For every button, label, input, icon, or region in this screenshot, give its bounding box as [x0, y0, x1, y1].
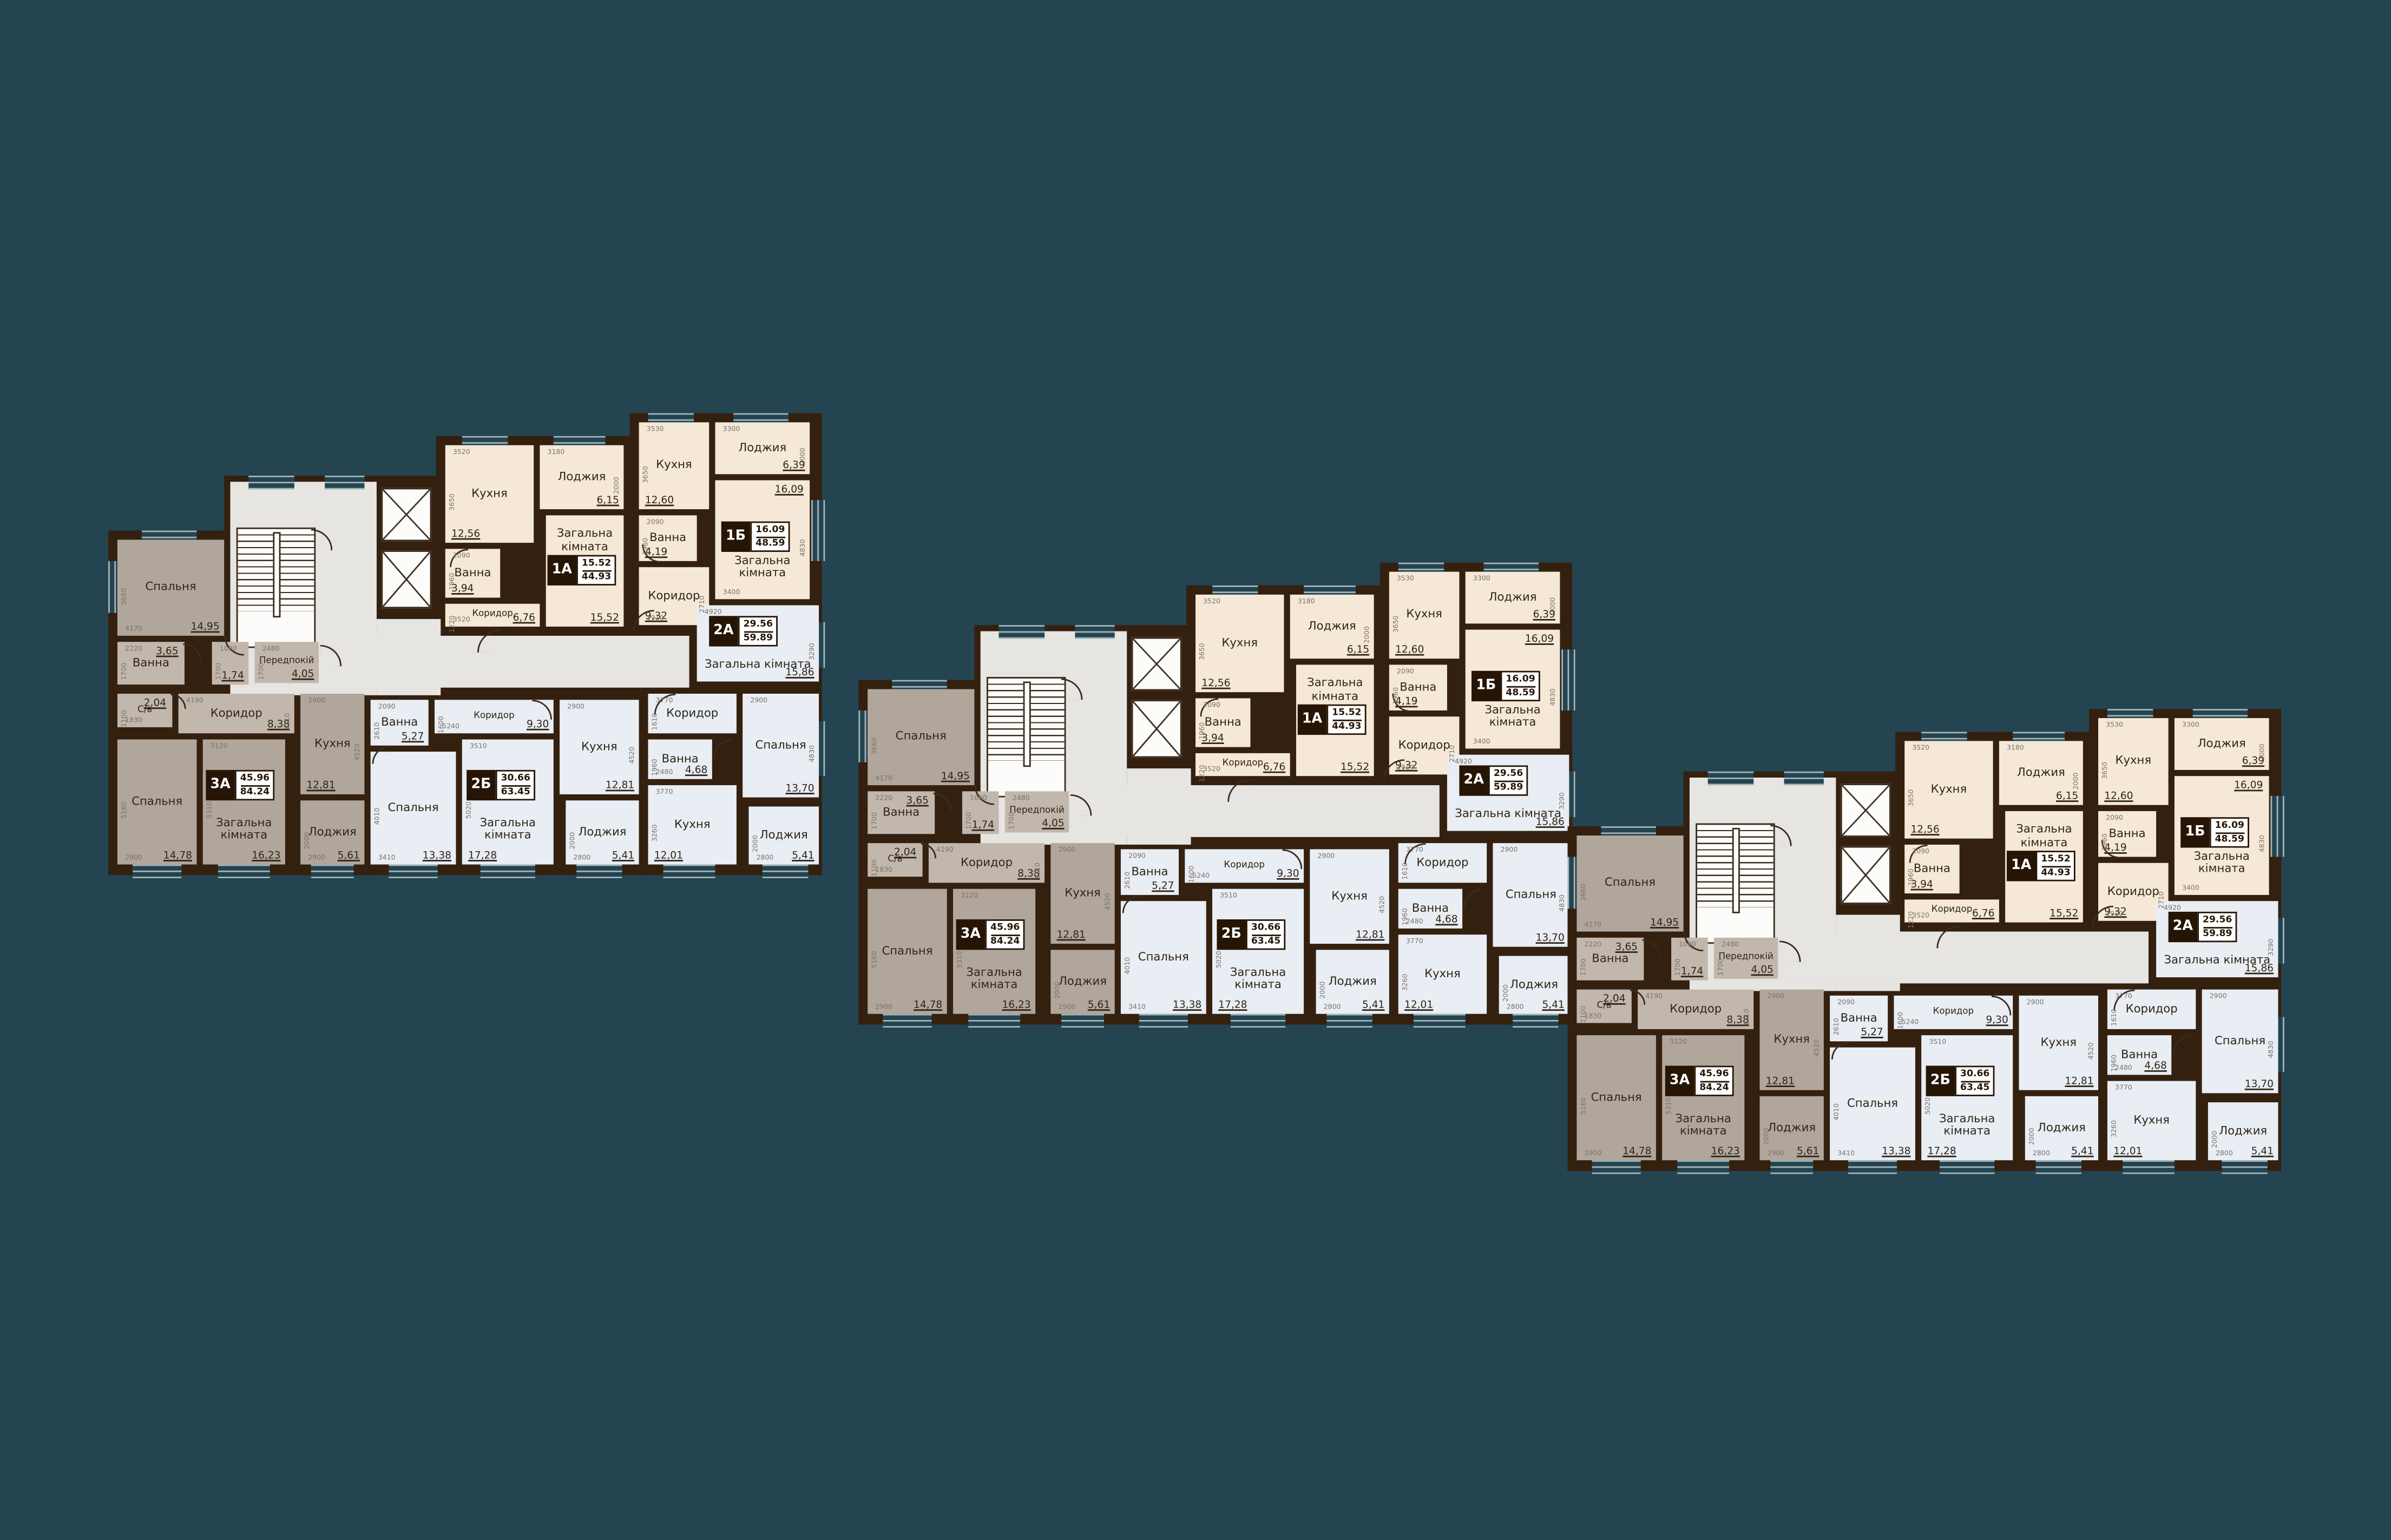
room-label: Коридор — [474, 712, 514, 722]
apartment-badge-1a: 1А15.5244.93 — [548, 555, 617, 585]
total-area-value: 84.24 — [1699, 1082, 1729, 1094]
apartment-code: 1А — [2007, 851, 2036, 881]
room-area: 6,15 — [597, 494, 619, 506]
dimension-label: 3770 — [656, 787, 673, 795]
room-area: 5,61 — [1797, 1145, 1819, 1157]
dimension-label: 3180 — [1298, 597, 1315, 605]
dimension-label: 2000 — [1363, 626, 1371, 643]
living-area-value: 45.96 — [240, 772, 270, 786]
dimension-label: 5020 — [464, 801, 472, 819]
room-label: Спальня — [1506, 889, 1556, 901]
apartment-badge-2a: 2А29.5659.89 — [1459, 765, 1528, 795]
room-kitchen: Кухня12,81 — [2019, 996, 2099, 1090]
room-area: 5,41 — [2071, 1145, 2093, 1157]
total-area-value: 59.89 — [2203, 928, 2232, 940]
room-label: Спальня — [132, 795, 182, 808]
room-living-room: Загальна кімната17,28 — [1921, 1035, 2013, 1160]
room-kitchen: Кухня12,81 — [1310, 849, 1389, 944]
window — [576, 865, 622, 878]
room-label: Лоджия — [1768, 1122, 1816, 1135]
staircase — [1696, 824, 1775, 944]
dimension-label: 3400 — [1473, 737, 1490, 745]
dimension-label: 2480 — [262, 644, 280, 652]
window — [999, 625, 1045, 639]
dimension-label: 2220 — [125, 644, 142, 652]
apartment-areas: 30.6663.45 — [1246, 919, 1286, 950]
room-label: Кухня — [314, 738, 351, 751]
dimension-label: 1910 — [2106, 910, 2123, 918]
dimension-label: 2900 — [2210, 992, 2227, 1000]
room-label: Лоджия — [2038, 1122, 2086, 1135]
dimension-label: 2000 — [303, 832, 311, 850]
dimension-label: 3770 — [1406, 845, 1423, 853]
apartment-code: 1А — [1298, 705, 1327, 735]
stair-rail — [1023, 681, 1031, 766]
room-label: Лоджия — [557, 471, 606, 484]
dimension-label: 1910 — [647, 614, 664, 622]
room-label: Передпокій — [1718, 953, 1773, 964]
window — [883, 1014, 931, 1028]
room-label: Спальня — [1591, 1091, 1642, 1104]
dimension-label: 3400 — [723, 588, 740, 596]
dimension-label: 5020 — [1923, 1097, 1932, 1115]
room-label: Передпокій — [1009, 807, 1064, 817]
dimension-label: 2800 — [573, 853, 590, 861]
dimension-label: 3120 — [961, 891, 978, 899]
window — [1139, 1014, 1188, 1028]
room-area: 15,52 — [590, 611, 619, 624]
dimension-label: 2220 — [875, 794, 892, 802]
room-area: 12,81 — [306, 779, 335, 792]
dimension-label: 4520 — [1812, 1039, 1821, 1057]
dimension-label: 4190 — [1645, 992, 1663, 1000]
room-bedroom: Спальня14,95 — [868, 689, 974, 786]
dimension-label: 2900 — [2027, 998, 2044, 1006]
total-area-value: 48.59 — [2215, 833, 2244, 845]
room-area: 17,28 — [1218, 999, 1247, 1011]
total-area-value: 44.93 — [2041, 867, 2070, 879]
dimension-label: 2900 — [750, 696, 767, 704]
apartment-areas: 30.6663.45 — [1955, 1066, 1995, 1096]
dimension-label: 1700 — [1716, 958, 1724, 975]
room-area: 16,23 — [252, 849, 280, 861]
dimension-label: 2000 — [798, 448, 806, 465]
dimension-label: 2900 — [1501, 845, 1518, 853]
dimension-label: 4010 — [1123, 957, 1131, 975]
room-label: Коридор — [1224, 861, 1264, 871]
room-label: Коридор — [1933, 1008, 1974, 1018]
dimension-label: 1090 — [220, 644, 237, 652]
dimension-label: 1310 — [1033, 863, 1041, 880]
living-area-value: 30.66 — [501, 772, 530, 786]
room-area: 12,01 — [2113, 1145, 2142, 1157]
room-label: Загальна кімната — [1662, 1113, 1744, 1138]
dimension-label: 3120 — [1670, 1037, 1687, 1045]
dimension-label: 4010 — [373, 807, 381, 825]
dimension-label: 2000 — [1501, 984, 1509, 1002]
room-label: Спальня — [2215, 1035, 2265, 1048]
dimension-label: 4830 — [798, 539, 806, 557]
dimension-label: 2000 — [1318, 982, 1326, 999]
dimension-label: 5020 — [1214, 951, 1223, 968]
dimension-label: 2480 — [656, 768, 673, 776]
room-label: Кухня — [2040, 1036, 2077, 1049]
window — [1075, 625, 1114, 639]
dimension-label: 3410 — [1128, 1003, 1146, 1011]
total-area-value: 48.59 — [756, 537, 785, 549]
dimension-label: 3660 — [870, 736, 878, 754]
dimension-label: 4520 — [1103, 893, 1112, 910]
room-area: 13,38 — [1882, 1145, 1910, 1157]
apartment-code: 3А — [1665, 1066, 1694, 1096]
room-living-room: Загальна кімната16,23 — [203, 740, 285, 865]
room-bedroom: Спальня13,38 — [1121, 901, 1206, 1014]
room-area: 3,65 — [907, 794, 929, 807]
room-area: 16,09 — [1525, 633, 1554, 645]
room-label: Кухня — [581, 741, 618, 754]
room-label: Коридор — [1932, 906, 1972, 916]
room-label: Коридор — [1398, 739, 1450, 752]
room-label: Ванна — [381, 716, 418, 729]
dimension-label: 3290 — [807, 643, 816, 660]
dimension-label: 1700 — [1007, 812, 1015, 829]
room-area: 15,86 — [2245, 962, 2274, 975]
dimension-label: 4520 — [2087, 1042, 2095, 1059]
dimension-label: 2800 — [757, 853, 774, 861]
dimension-label: 4190 — [936, 845, 954, 853]
room-label: Кухня — [1406, 609, 1442, 622]
dimension-label: 1830 — [875, 865, 892, 873]
dimension-label: 2610 — [1832, 1018, 1840, 1035]
dimension-label: 3520 — [1912, 743, 1929, 752]
room-bedroom: Спальня14,78 — [1577, 1035, 1656, 1160]
dimension-label: 3650 — [2100, 761, 2108, 779]
dimension-label: 3180 — [548, 447, 565, 456]
dimension-label: 3510 — [1220, 891, 1237, 899]
apartment-code: 2А — [709, 616, 738, 646]
hallway-floor — [1784, 932, 2149, 984]
room-area: 12,56 — [451, 528, 480, 540]
room-area: 9,30 — [1986, 1014, 2008, 1026]
dimension-label: 3770 — [656, 696, 673, 704]
apartment-badge-3a: 3А45.9684.24 — [956, 919, 1026, 950]
dimension-label: 3260 — [1401, 974, 1409, 991]
dimension-label: 1610 — [651, 713, 659, 730]
dimension-label: 3180 — [2007, 743, 2024, 752]
apartment-code: 3А — [206, 770, 235, 800]
dimension-label: 4170 — [125, 624, 142, 633]
room-label: Кухня — [656, 459, 692, 472]
dimension-label: 2900 — [875, 1003, 892, 1011]
building-section-3: Кухня12,5635203650Лоджия6,1531802000Зага… — [1555, 689, 2284, 1174]
dimension-label: 2900 — [1058, 1003, 1075, 1011]
dimension-label: 2000 — [2072, 773, 2080, 790]
room-area: 12,56 — [1201, 677, 1230, 689]
dimension-label: 3660 — [1579, 883, 1587, 900]
window — [2270, 796, 2284, 857]
apartment-areas: 30.6663.45 — [496, 770, 536, 800]
room-area: 4,68 — [1435, 913, 1457, 926]
dimension-label: 1830 — [1584, 1011, 1601, 1019]
room-area: 15,86 — [785, 666, 814, 679]
window — [1784, 772, 1824, 785]
dimension-label: 2090 — [1203, 701, 1220, 709]
room-label: Загальна кімната — [462, 817, 554, 842]
elevator-shaft — [381, 488, 431, 542]
apartment-badge-2a: 2А29.5659.89 — [2169, 912, 2238, 942]
dimension-label: 2000 — [1762, 1128, 1770, 1145]
room-area: 12,56 — [1910, 824, 1939, 836]
room-label: Лоджия — [1308, 620, 1356, 633]
total-area-value: 44.93 — [582, 571, 611, 583]
window — [1940, 1160, 1994, 1174]
window — [968, 1014, 1020, 1028]
living-area-value: 30.66 — [1960, 1068, 1989, 1082]
room-living-room: Загальна кімната17,28 — [462, 740, 554, 865]
dimension-label: 2800 — [1507, 1003, 1524, 1011]
window — [664, 865, 715, 878]
window — [1326, 1014, 1372, 1028]
dimension-label: 2900 — [567, 702, 584, 710]
window — [1592, 1160, 1641, 1174]
apartment-areas: 16.0948.59 — [750, 522, 790, 552]
dimension-label: 3650 — [448, 493, 456, 511]
room-area: 12,60 — [2104, 790, 2133, 802]
room-area: 2,04 — [144, 697, 166, 709]
room-label: Загальна кімната — [1921, 1113, 2013, 1138]
room-kitchen: Кухня12,56 — [445, 445, 534, 543]
room-area: 3,65 — [1615, 940, 1638, 953]
room-label: Спальня — [1138, 951, 1189, 964]
room-area: 14,78 — [163, 849, 192, 861]
room-area: 16,23 — [1002, 999, 1030, 1011]
dimension-label: 4520 — [1378, 896, 1386, 913]
total-area-value: 59.89 — [1494, 781, 1523, 793]
dimension-label: 3650 — [1391, 615, 1400, 632]
building-section-2: Кухня12,5635203650Лоджия6,1531802000Зага… — [846, 543, 1575, 1028]
dimension-label: 2090 — [453, 551, 470, 560]
elevator-shaft — [381, 550, 431, 608]
room-label: Кухня — [1931, 784, 1967, 797]
dimension-label: 3260 — [2110, 1120, 2118, 1137]
room-area: 15,52 — [2050, 907, 2078, 919]
dimension-label: 2000 — [2210, 1131, 2218, 1148]
room-label: Лоджия — [2219, 1125, 2267, 1138]
dimension-label: 3520 — [1203, 597, 1220, 605]
room-label: Загальна кімната — [203, 817, 285, 842]
elevator-shaft — [1132, 637, 1182, 691]
dimension-label: 3400 — [2182, 884, 2199, 892]
room-area: 6,15 — [1347, 643, 1369, 656]
dimension-label: 3650 — [1198, 643, 1206, 660]
dimension-label: 2900 — [1317, 852, 1335, 860]
dimension-label: 5160 — [870, 951, 878, 968]
apartment-code: 2Б — [1926, 1066, 1955, 1096]
room-bedroom: Спальня14,78 — [117, 740, 197, 865]
dimension-label: 2090 — [2106, 813, 2123, 821]
dimension-label: 5240 — [1902, 1018, 1919, 1026]
room-kitchen: Кухня12,01 — [2107, 1081, 2196, 1161]
dimension-label: 2000 — [751, 835, 759, 852]
room-area: 2,04 — [894, 846, 916, 859]
room-area: 6,76 — [1972, 907, 1994, 919]
room-label: Коридор — [2107, 885, 2159, 898]
room-bedroom: Спальня13,70 — [2202, 990, 2278, 1094]
room-label: Коридор — [472, 610, 513, 621]
dimension-label: 1910 — [1397, 763, 1414, 771]
apartment-badge-2a: 2А29.5659.89 — [709, 616, 778, 646]
window — [133, 865, 181, 878]
room-label: Ванна — [454, 567, 491, 580]
window — [1848, 1160, 1897, 1174]
window — [811, 500, 825, 561]
hallway-floor — [325, 636, 689, 688]
window — [1414, 1014, 1466, 1028]
room-area: 5,41 — [1362, 999, 1384, 1011]
apartment-code: 1А — [548, 555, 577, 585]
room-label: Загальна кімната — [715, 555, 810, 580]
room-area: 12,60 — [1395, 643, 1424, 656]
window — [389, 865, 437, 878]
living-area-value: 16.09 — [2215, 820, 2244, 833]
stair-rail — [1732, 828, 1740, 913]
apartment-areas: 45.9684.24 — [235, 770, 275, 800]
window — [1513, 1014, 1559, 1028]
dimension-label: 3260 — [651, 824, 659, 841]
room-label: Ванна — [649, 532, 686, 545]
dimension-label: 2000 — [2257, 743, 2265, 761]
dimension-label: 5310 — [1664, 1097, 1672, 1115]
dimension-label: 1090 — [1679, 940, 1696, 948]
building-section-1: Кухня12,5635203650Лоджия6,1531802000Зага… — [96, 393, 825, 878]
total-area-value: 44.93 — [1332, 720, 1361, 732]
room-label: Лоджия — [1510, 978, 1558, 991]
dimension-label: 3510 — [470, 742, 487, 750]
room-area: 4,68 — [685, 764, 707, 776]
window — [1231, 1014, 1285, 1028]
window — [1061, 1014, 1104, 1028]
dimension-label: 2900 — [308, 696, 325, 704]
apartment-areas: 45.9684.24 — [1694, 1066, 1734, 1096]
room-area: 5,27 — [1861, 1026, 1883, 1038]
apartment-badge-2b: 2Б30.6663.45 — [467, 770, 536, 800]
total-area-value: 84.24 — [990, 936, 1020, 947]
elevator-shaft — [1132, 700, 1182, 758]
dimension-label: 2090 — [1837, 998, 1855, 1006]
living-area-value: 15.52 — [1332, 707, 1361, 720]
dimension-label: 2480 — [1013, 794, 1030, 802]
dimension-label: 1960 — [2100, 833, 2108, 851]
dimension-label: 4830 — [2267, 1041, 2275, 1058]
room-area: 14,95 — [1650, 916, 1679, 929]
dimension-label: 1960 — [1198, 722, 1206, 740]
room-area: 13,38 — [1173, 999, 1201, 1011]
room-area: 16,09 — [2234, 779, 2263, 792]
apartment-code: 2А — [1459, 765, 1488, 795]
room-living-room: Загальна кімната16,23 — [1662, 1035, 1744, 1160]
apartment-code: 2Б — [467, 770, 496, 800]
room-area: 12,01 — [654, 849, 683, 861]
living-area-value: 16.09 — [1506, 673, 1535, 687]
room-label: Ванна — [1914, 863, 1950, 876]
dimension-label: 4830 — [1558, 894, 1566, 912]
room-area: 5,27 — [1152, 880, 1174, 892]
living-area-value: 29.56 — [1494, 768, 1523, 781]
room-label: Лоджия — [2198, 738, 2246, 751]
room-label: Кухня — [1331, 890, 1368, 903]
room-label: Ванна — [883, 806, 919, 819]
window — [325, 476, 364, 489]
dimension-label: 2480 — [2115, 1063, 2132, 1071]
dimension-label: 3530 — [2106, 720, 2123, 728]
room-area: 14,95 — [191, 621, 220, 633]
dimension-label: 1310 — [283, 713, 291, 730]
room-label: Ванна — [2109, 827, 2146, 840]
room-area: 5,61 — [338, 849, 360, 861]
room-label: Загальна кімната — [1466, 704, 1560, 729]
dimension-label: 1090 — [970, 794, 987, 802]
room-area: 13,70 — [785, 782, 814, 794]
dimension-label: 3510 — [1929, 1037, 1946, 1045]
room-area: 12,81 — [1057, 929, 1086, 941]
room-area: 12,81 — [606, 779, 634, 792]
stair-rail — [273, 532, 280, 617]
dimension-label: 1960 — [1907, 868, 1915, 886]
apartment-areas: 45.9684.24 — [985, 919, 1025, 950]
room-label: Спальня — [896, 730, 947, 743]
room-label: Кухня — [674, 818, 711, 831]
dimension-label: 2000 — [612, 477, 620, 494]
dimension-label: 1700 — [1673, 958, 1681, 976]
dimension-label: 2610 — [1123, 872, 1131, 889]
window — [248, 476, 294, 489]
floor-plan-canvas: Кухня12,5635203650Лоджия6,1531802000Зага… — [0, 0, 2391, 1540]
dimension-label: 3290 — [1558, 792, 1566, 810]
dimension-label: 4170 — [1584, 920, 1601, 928]
dimension-label: 4520 — [353, 743, 361, 761]
room-area: 12,01 — [1404, 999, 1433, 1011]
dimension-label: 2000 — [2027, 1128, 2035, 1145]
room-area: 1,74 — [221, 669, 244, 682]
room-area: 6,76 — [513, 611, 535, 624]
room-area: 12,81 — [1356, 929, 1384, 941]
room-label: Кухня — [1221, 637, 1258, 650]
dimension-label: 3290 — [2267, 939, 2275, 956]
room-label: Спальня — [1605, 877, 1656, 890]
dimension-label: 2610 — [373, 722, 381, 740]
room-label: Загальна кімната — [2175, 850, 2269, 876]
room-kitchen: Кухня12,81 — [560, 700, 639, 794]
dimension-label: 3410 — [378, 853, 396, 861]
room-label: Коридор — [211, 707, 262, 720]
living-area-value: 45.96 — [990, 922, 1020, 935]
total-area-value: 63.45 — [1960, 1082, 1989, 1094]
dimension-label: 3520 — [1203, 765, 1220, 773]
apartment-badge-1a: 1А15.5244.93 — [1298, 705, 1367, 735]
room-label: Кухня — [2116, 755, 2152, 768]
dimension-label: 2900 — [1584, 1149, 1601, 1157]
room-area: 1,74 — [972, 819, 994, 831]
apartment-code: 1Б — [721, 522, 751, 552]
living-area-value: 30.66 — [1251, 922, 1280, 935]
dimension-label: 4830 — [1548, 689, 1556, 706]
staircase — [987, 677, 1066, 798]
room-area: 14,95 — [941, 770, 970, 782]
room-label: Коридор — [1223, 760, 1263, 770]
window — [2123, 1160, 2175, 1174]
room-area: 4,05 — [1751, 964, 1773, 976]
room-area: 5,41 — [2251, 1145, 2274, 1157]
